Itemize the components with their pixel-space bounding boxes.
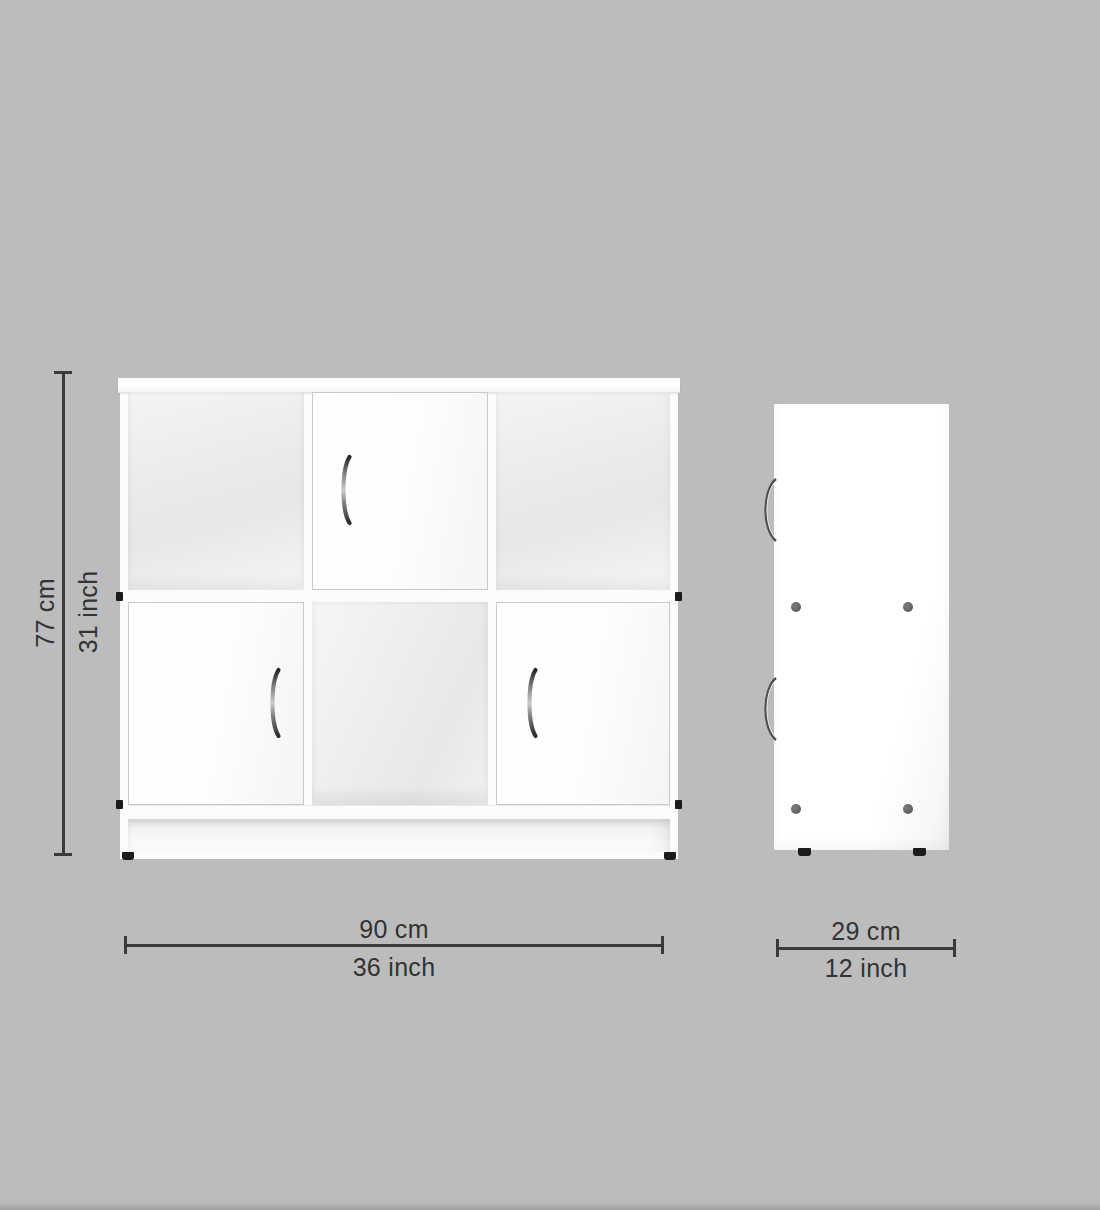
height-dimension-cap-bottom <box>54 853 72 856</box>
door-handle-icon <box>266 667 282 739</box>
depth-dimension-cap-right <box>953 939 956 957</box>
screw-cap-dot <box>791 602 801 612</box>
depth-label-cm: 29 cm <box>831 919 901 944</box>
hinge-tab <box>675 592 682 601</box>
hinge-tab <box>675 800 682 809</box>
door-bottom-right <box>496 602 670 805</box>
height-label-inch: 31 inch <box>76 571 101 654</box>
screw-cap-dot <box>903 804 913 814</box>
side-handle-icon <box>761 477 777 543</box>
cabinet-foot <box>798 848 811 856</box>
product-dimension-image: 77 cm 31 inch <box>0 0 1100 1210</box>
open-cube-top-left <box>128 392 304 590</box>
width-label-cm: 90 cm <box>359 917 429 942</box>
depth-label-inch: 12 inch <box>825 956 908 981</box>
width-dimension-cap-right <box>661 936 664 954</box>
cabinet-right-leg <box>670 805 678 852</box>
cabinet-foot <box>913 848 926 856</box>
screw-cap-dot <box>903 602 913 612</box>
door-handle-icon <box>337 454 353 526</box>
hinge-tab <box>116 592 123 601</box>
width-dimension-line <box>125 944 663 947</box>
cabinet-top-board <box>118 378 680 393</box>
depth-dimension-line <box>777 947 955 950</box>
open-cube-bottom-center <box>312 602 488 805</box>
cabinet-left-leg <box>120 805 128 852</box>
screw-cap-dot <box>791 804 801 814</box>
side-view <box>774 404 949 850</box>
door-handle-icon <box>523 667 539 739</box>
width-label-inch: 36 inch <box>353 955 436 980</box>
front-bottom-rail <box>120 805 678 819</box>
front-view <box>120 378 678 859</box>
hinge-tab <box>116 800 123 809</box>
open-cube-top-right <box>496 392 670 590</box>
bottom-edge-shadow <box>0 1202 1100 1210</box>
door-top-center <box>312 392 488 590</box>
height-label-cm: 77 cm <box>33 578 58 648</box>
cabinet-foot <box>664 852 676 860</box>
door-bottom-left <box>128 602 304 805</box>
side-handle-icon <box>761 676 777 742</box>
plinth-recess <box>128 819 670 852</box>
cabinet-foot <box>122 852 134 860</box>
height-dimension-line <box>62 372 65 855</box>
